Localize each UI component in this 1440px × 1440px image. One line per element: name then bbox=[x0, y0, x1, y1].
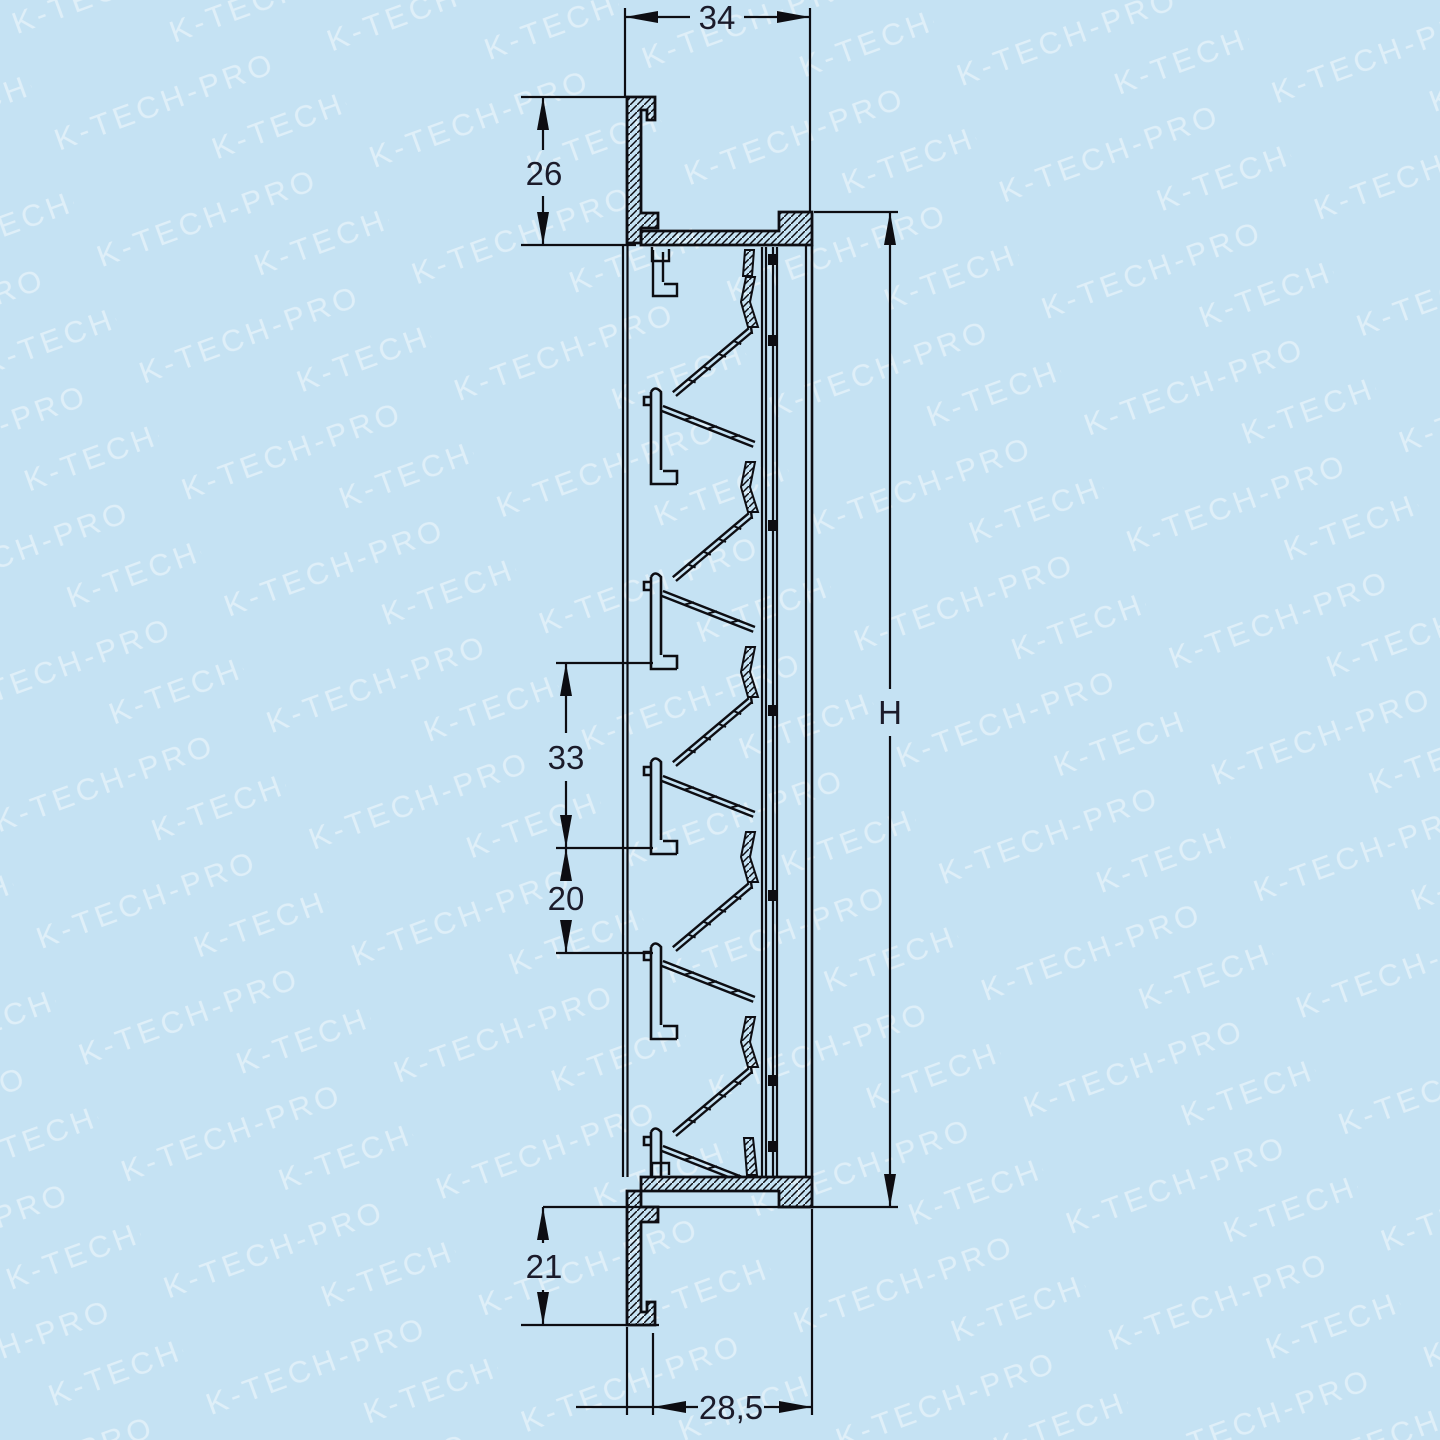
technical-drawing: K-TECH-PRO K-TECH-PRO bbox=[0, 0, 1440, 1440]
dim-26-label: 26 bbox=[526, 155, 563, 192]
dim-33-label: 33 bbox=[548, 739, 585, 776]
dim-20-label: 20 bbox=[548, 880, 585, 917]
dim-28_5-label: 28,5 bbox=[699, 1389, 763, 1426]
dim-34-label: 34 bbox=[699, 0, 736, 36]
dim-21-label: 21 bbox=[526, 1248, 563, 1285]
watermark-layer bbox=[0, 0, 1440, 1440]
page: K-TECH-PRO K-TECH-PRO bbox=[0, 0, 1440, 1440]
dim-H-label: H bbox=[878, 694, 902, 731]
